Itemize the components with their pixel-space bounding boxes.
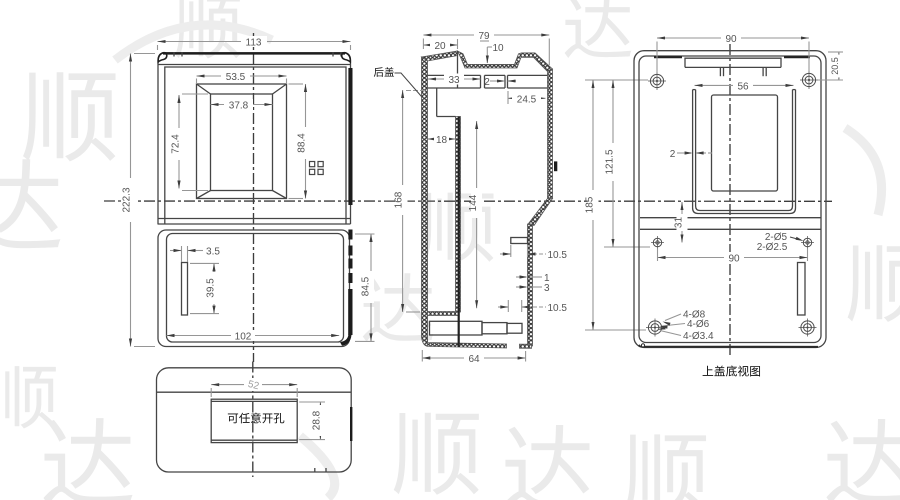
svg-text:18: 18 [436, 135, 448, 146]
svg-text:64: 64 [468, 354, 480, 365]
svg-text:10: 10 [493, 43, 505, 54]
svg-text:185: 185 [585, 196, 596, 213]
svg-text:144: 144 [468, 194, 479, 211]
svg-text:222.3: 222.3 [122, 187, 133, 212]
svg-text:3.5: 3.5 [206, 247, 220, 258]
svg-text:2-Ø2.5: 2-Ø2.5 [757, 242, 788, 253]
svg-text:31: 31 [674, 217, 685, 229]
svg-text:20: 20 [434, 41, 446, 52]
svg-text:90: 90 [728, 254, 740, 265]
svg-text:56: 56 [737, 81, 749, 92]
svg-text:84.5: 84.5 [361, 276, 372, 296]
svg-text:2: 2 [670, 149, 676, 160]
svg-text:33: 33 [448, 75, 460, 86]
svg-text:3: 3 [544, 283, 550, 294]
svg-text:102: 102 [235, 332, 252, 343]
svg-text:28.8: 28.8 [311, 410, 322, 430]
svg-text:37.8: 37.8 [229, 101, 249, 112]
svg-text:90: 90 [725, 34, 737, 45]
svg-text:20.5: 20.5 [830, 57, 840, 75]
svg-text:168: 168 [394, 191, 405, 208]
svg-text:72.4: 72.4 [171, 134, 182, 154]
svg-text:2: 2 [484, 77, 490, 88]
svg-text:79: 79 [478, 31, 490, 42]
svg-text:88.4: 88.4 [297, 133, 308, 153]
svg-text:39.5: 39.5 [206, 278, 217, 298]
svg-text:10.5: 10.5 [548, 250, 568, 261]
svg-text:4-Ø3.4: 4-Ø3.4 [683, 331, 714, 342]
svg-text:10.5: 10.5 [548, 303, 568, 314]
svg-text:53.5: 53.5 [226, 72, 246, 83]
svg-text:24.5: 24.5 [517, 94, 537, 105]
svg-text:4-Ø6: 4-Ø6 [687, 319, 710, 330]
svg-text:113: 113 [246, 38, 262, 49]
svg-text:121.5: 121.5 [605, 149, 616, 174]
